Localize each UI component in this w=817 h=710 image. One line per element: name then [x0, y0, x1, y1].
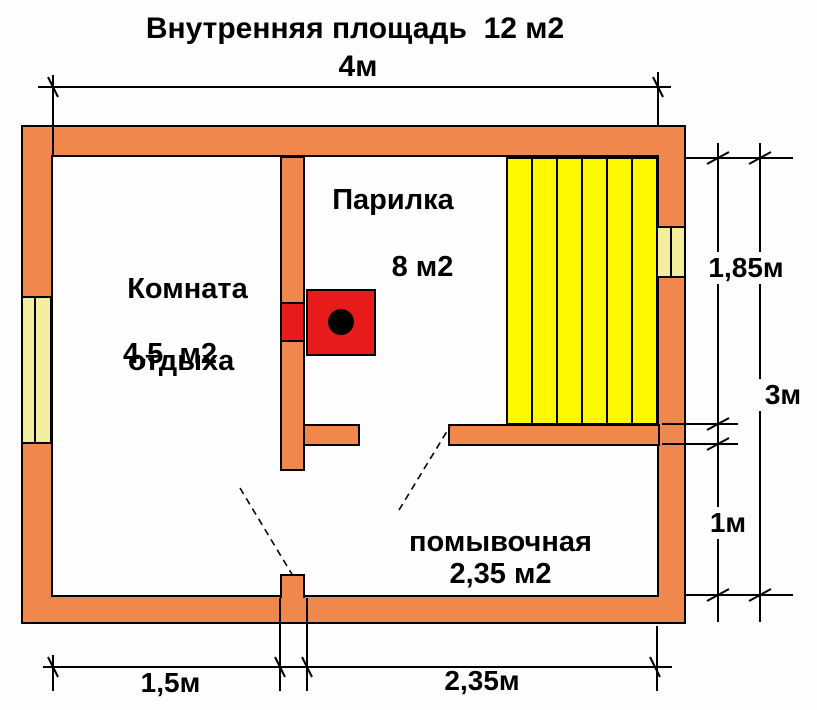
bench-slat — [556, 157, 583, 425]
entry-door-post — [280, 574, 305, 598]
sauna-floor-plan: Внутренняя площадь 12 м2 4м Комната отды… — [0, 0, 817, 710]
room-label-wash: помывочная — [403, 526, 598, 559]
partition-wall-stub — [303, 424, 360, 446]
room-label-rest-line1: Комната — [127, 273, 247, 305]
bench-slat — [581, 157, 608, 425]
stove-wall-section — [280, 302, 305, 342]
bench-slat — [631, 157, 658, 425]
room-area-wash: 2,35 м2 — [418, 558, 583, 591]
dim-steam-depth: 1,85м — [700, 252, 792, 284]
window-right-wall — [655, 226, 686, 278]
stove-chimney-circle — [328, 309, 354, 335]
steam-room-benches — [506, 157, 658, 425]
bench-slat — [506, 157, 533, 425]
bench-slat — [531, 157, 558, 425]
room-area-rest: 4,5 м2 — [100, 338, 240, 371]
dim-entry-left: 1,5м — [118, 667, 223, 699]
window-left-divider — [34, 298, 36, 442]
window-right-divider — [670, 228, 672, 276]
room-label-rest: Комната отдыха — [95, 235, 235, 415]
window-left-wall — [21, 296, 52, 444]
room-label-steam: Парилка — [325, 184, 461, 217]
washroom-wall — [448, 424, 660, 446]
dim-wash-depth: 1м — [703, 507, 753, 539]
plan-title: Внутренняя площадь 12 м2 — [115, 12, 595, 47]
dim-total-width: 4м — [318, 50, 398, 85]
dim-total-height: 3м — [759, 379, 807, 411]
room-area-steam: 8 м2 — [360, 251, 485, 284]
dim-entry-right: 2,35м — [426, 665, 538, 697]
bench-slat — [606, 157, 633, 425]
